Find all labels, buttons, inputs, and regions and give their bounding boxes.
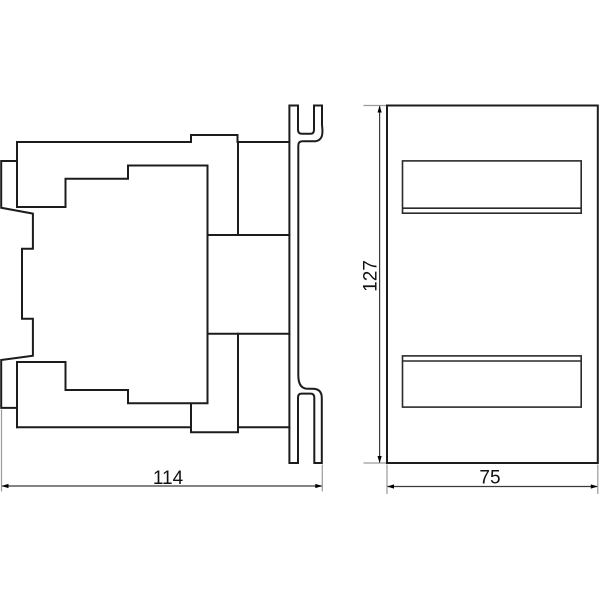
svg-text:75: 75	[479, 468, 500, 489]
svg-text:114: 114	[153, 468, 184, 489]
svg-text:127: 127	[361, 260, 382, 292]
